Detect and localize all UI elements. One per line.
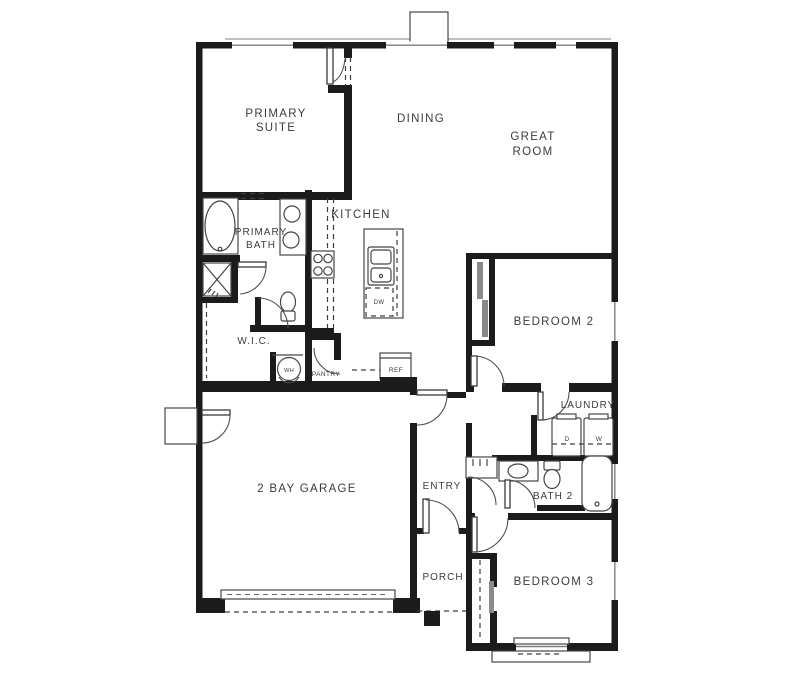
porch-edge <box>417 611 466 626</box>
label-entry: ENTRY <box>423 481 462 492</box>
shower <box>203 263 231 297</box>
floor-plan-page: PRIMARYSUITE DINING GREATROOM KITCHEN PR… <box>0 0 800 683</box>
bathtub <box>203 198 238 254</box>
toilet-primary <box>281 292 296 321</box>
label-porch: PORCH <box>422 572 463 583</box>
bath2-door <box>505 480 535 508</box>
label-bedroom2: BEDROOM 2 <box>514 316 595 328</box>
bedroom2-door <box>471 356 504 386</box>
wic-door <box>238 262 266 294</box>
label-wic: W.I.C. <box>237 336 270 347</box>
label-laundry: LAUNDRY <box>561 400 616 411</box>
bedroom3-bay <box>492 651 590 662</box>
label-washer: W <box>596 436 603 443</box>
primary-suite-door <box>327 48 345 84</box>
bedroom3-door <box>472 517 508 552</box>
label-primary-suite: PRIMARYSUITE <box>245 108 306 134</box>
linen-door <box>468 477 496 505</box>
label-ref: REF <box>389 367 403 374</box>
linen-closet <box>466 457 497 478</box>
laundry-fixtures <box>552 414 613 456</box>
label-garage: 2 BAY GARAGE <box>257 483 357 495</box>
bath2-vanity <box>499 461 538 481</box>
label-bath2: BATH 2 <box>533 491 573 502</box>
garage-door <box>221 590 395 612</box>
label-pantry: PANTRY <box>312 371 340 378</box>
garage-service-door <box>165 408 230 444</box>
label-dining: DINING <box>397 113 445 125</box>
label-kitchen: KITCHEN <box>331 209 391 221</box>
label-great-room: GREATROOM <box>510 131 555 158</box>
cased-openings <box>207 57 481 640</box>
cooktop <box>311 251 334 278</box>
label-wh: WH <box>284 368 294 374</box>
front-door <box>423 499 459 533</box>
bath2-fixtures <box>466 456 612 511</box>
floor-plan-canvas: PRIMARYSUITE DINING GREATROOM KITCHEN PR… <box>0 0 800 683</box>
label-bedroom3: BEDROOM 3 <box>514 576 595 588</box>
label-primary-bath: PRIMARYBATH <box>235 227 287 251</box>
garage-entry-door <box>417 390 447 425</box>
toilet-bath2 <box>544 461 560 489</box>
label-dw: DW <box>374 300 385 306</box>
label-dryer: D <box>564 436 569 443</box>
fireplace-bump <box>410 12 448 43</box>
bathtub2 <box>582 456 612 511</box>
